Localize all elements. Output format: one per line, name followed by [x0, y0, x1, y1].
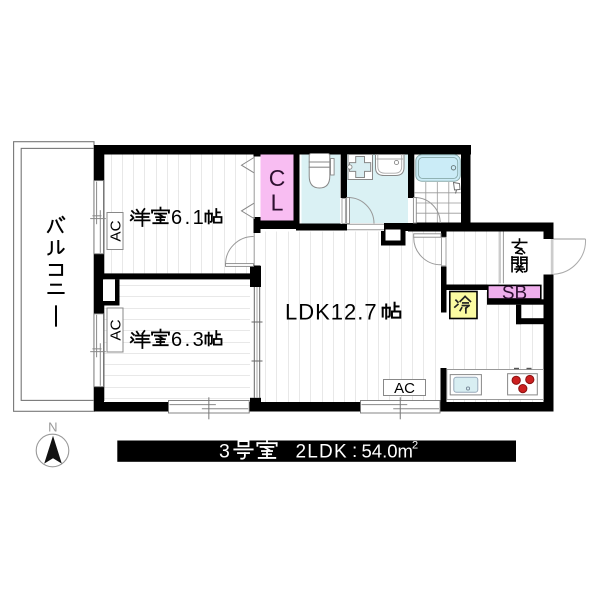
svg-text:3: 3	[219, 440, 230, 462]
svg-text:AC: AC	[107, 220, 124, 241]
svg-text:SB: SB	[502, 283, 527, 304]
svg-text:2LDK: 2LDK	[296, 441, 348, 462]
svg-text:LDK12.7: LDK12.7	[285, 300, 378, 325]
svg-text:C: C	[269, 165, 286, 191]
svg-text:2: 2	[412, 440, 418, 452]
svg-text:L: L	[271, 190, 284, 216]
svg-text::: :	[352, 441, 357, 462]
svg-text:AC: AC	[394, 380, 415, 397]
svg-text:6.1: 6.1	[171, 207, 206, 229]
svg-text:6.3: 6.3	[171, 329, 206, 351]
svg-text:AC: AC	[107, 319, 124, 340]
svg-text:N: N	[48, 420, 57, 435]
svg-text:54.0m: 54.0m	[362, 440, 413, 461]
